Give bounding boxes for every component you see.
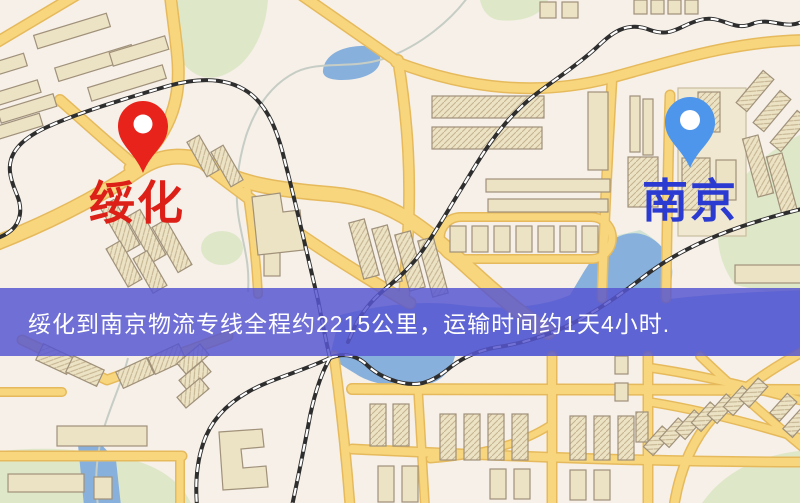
route-info-banner: 绥化到南京物流专线全程约2215公里，运输时间约1天4小时. — [0, 288, 800, 356]
destination-pin-hole — [680, 110, 700, 130]
route-info-text: 绥化到南京物流专线全程约2215公里，运输时间约1天4小时. — [28, 305, 670, 339]
destination-label: 南京 — [642, 176, 738, 227]
map-svg: 绥化 南京 — [0, 0, 800, 503]
origin-label: 绥化 — [89, 178, 185, 229]
map-canvas[interactable]: 绥化 南京 绥化到南京物流专线全程约2215公里，运输时间约1天4小时. — [0, 0, 800, 503]
origin-pin-hole — [134, 115, 153, 134]
